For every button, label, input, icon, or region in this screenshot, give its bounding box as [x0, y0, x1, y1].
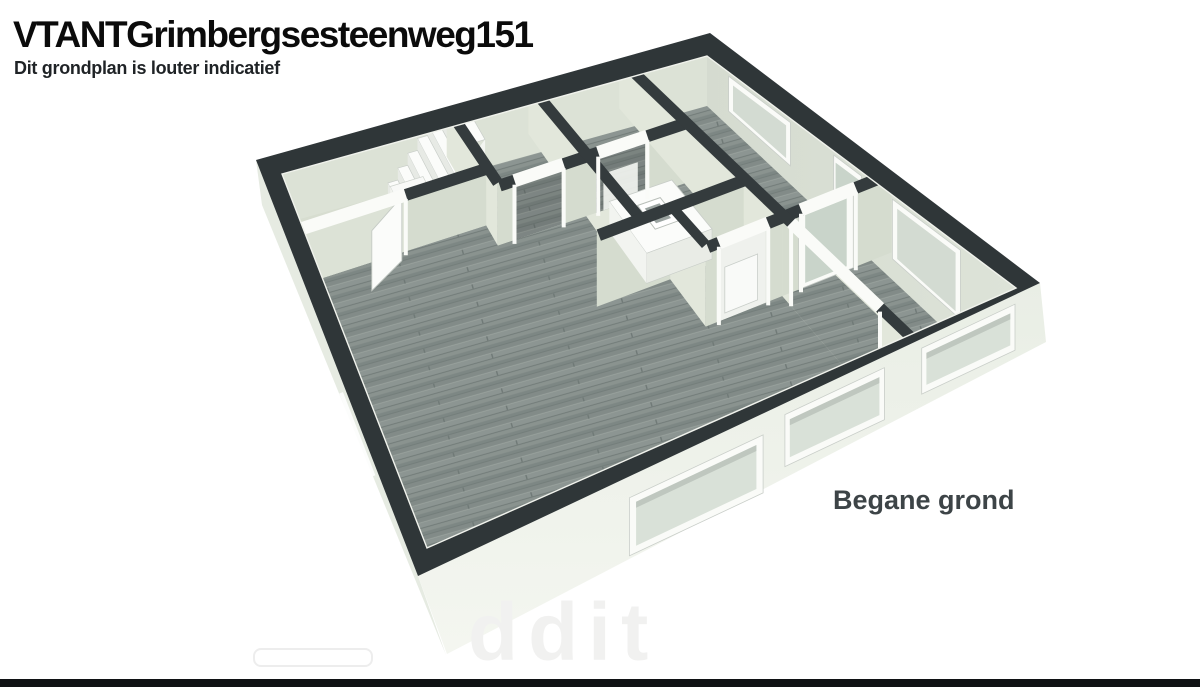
faded-ui-chip — [253, 648, 373, 667]
bottom-black-bar — [0, 679, 1200, 687]
page-title: VTANTGrimbergsesteenweg151 — [13, 14, 533, 56]
floor-level-label: Begane grond — [833, 485, 1015, 516]
watermark-text: ddit — [468, 586, 658, 680]
floorplan-3d-render — [0, 0, 1200, 687]
floorplan-page: { "header": { "title": "VTANTGrimbergses… — [0, 0, 1200, 687]
page-subtitle: Dit grondplan is louter indicatief — [14, 58, 280, 79]
